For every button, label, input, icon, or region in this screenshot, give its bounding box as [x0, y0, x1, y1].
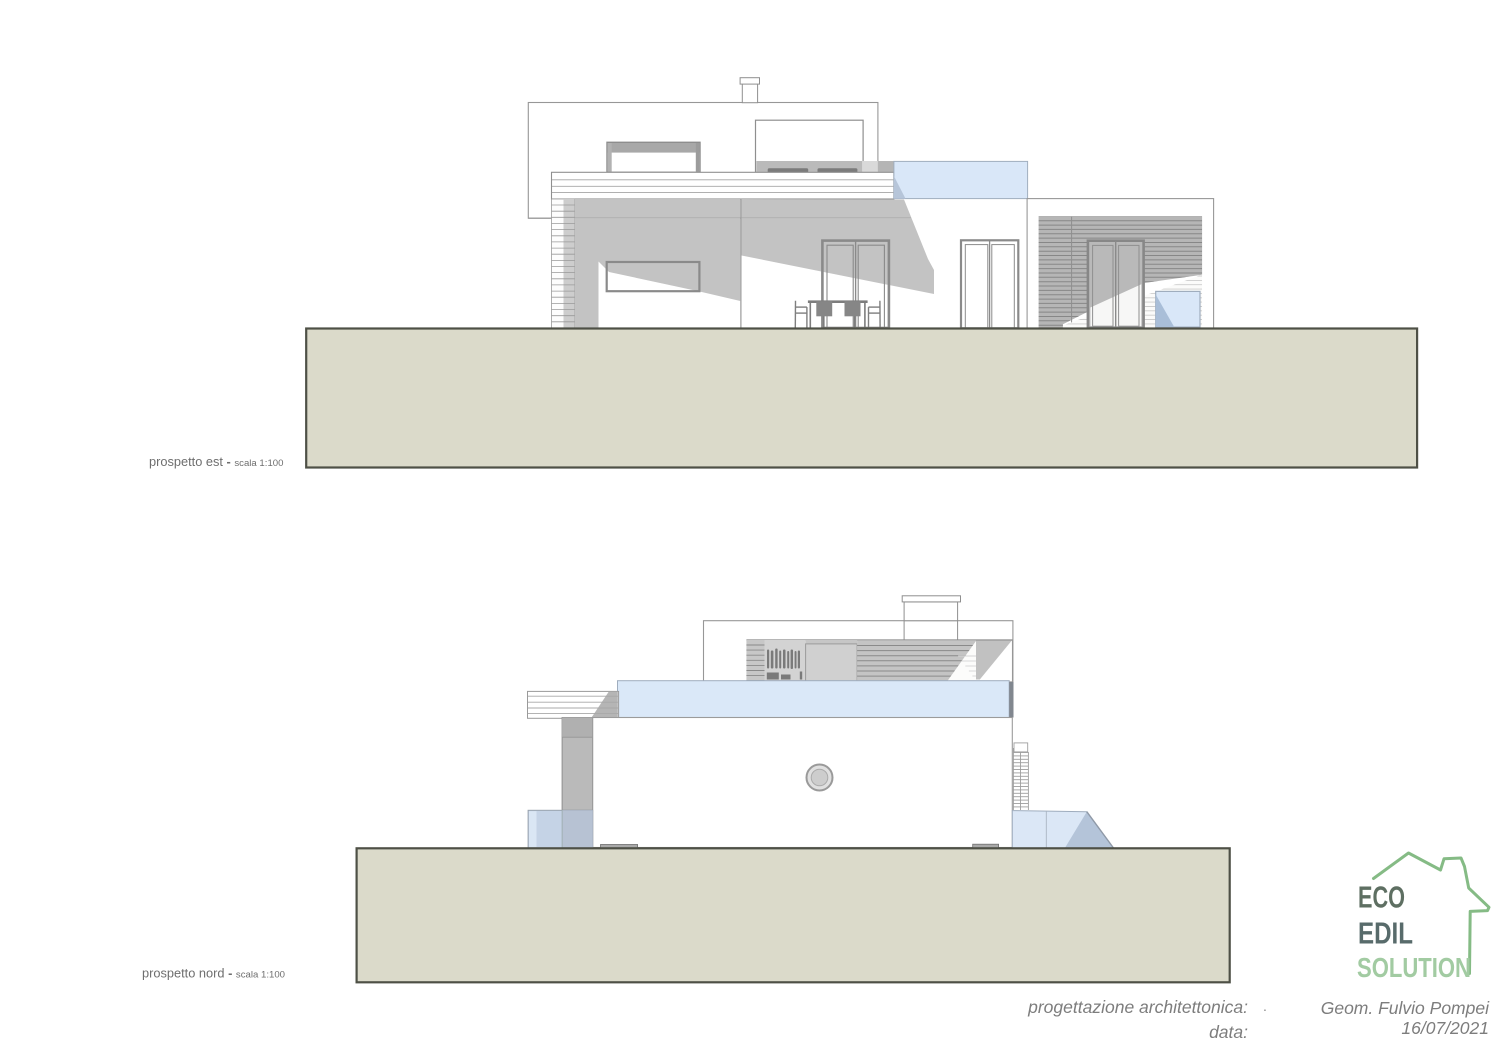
svg-text:prospetto nord - scala 1:100: prospetto nord - scala 1:100 [142, 966, 285, 981]
svg-text:prospetto est - scala 1:100: prospetto est - scala 1:100 [149, 454, 283, 469]
svg-text:progettazione architettonica:: progettazione architettonica: [1027, 997, 1248, 1017]
svg-text:data:: data: [1209, 1022, 1248, 1042]
svg-text:EDIL: EDIL [1358, 916, 1413, 951]
svg-text:SOLUTION: SOLUTION [1357, 952, 1471, 983]
svg-text:.: . [1263, 998, 1267, 1014]
svg-text:Geom. Fulvio Pompei: Geom. Fulvio Pompei [1321, 998, 1490, 1018]
svg-text:16/07/2021: 16/07/2021 [1401, 1018, 1489, 1038]
svg-text:ECO: ECO [1358, 880, 1405, 915]
